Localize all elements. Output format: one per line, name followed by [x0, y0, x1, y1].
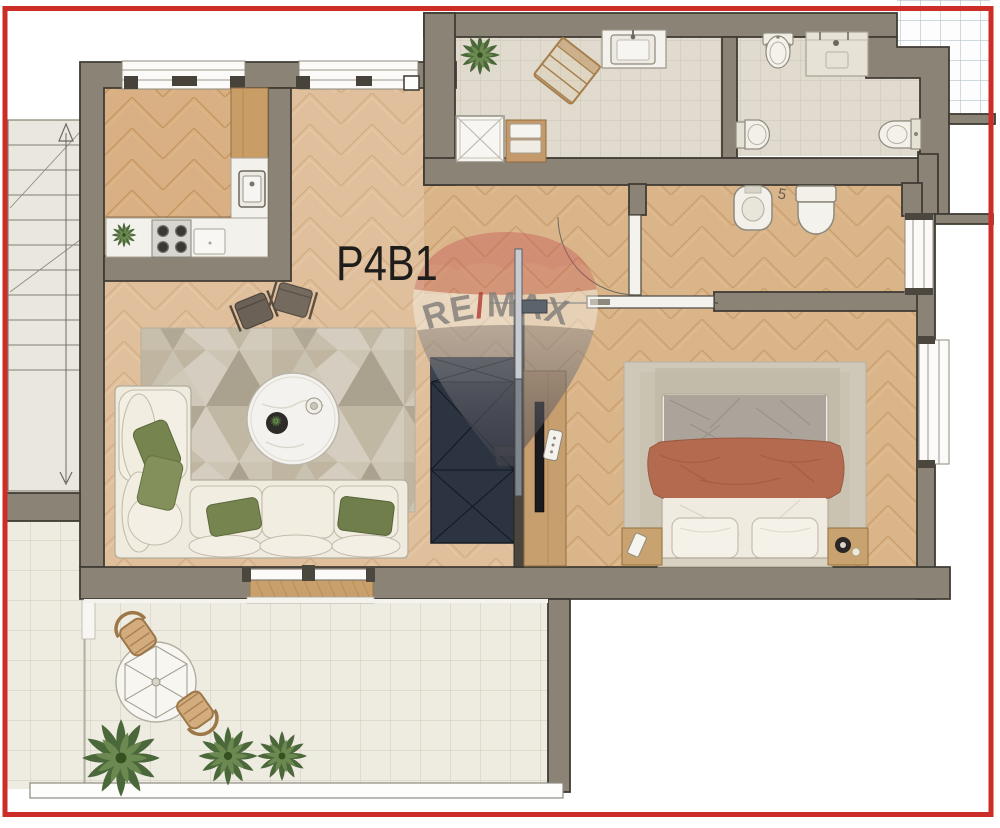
svg-text:P4B1: P4B1: [336, 236, 438, 291]
